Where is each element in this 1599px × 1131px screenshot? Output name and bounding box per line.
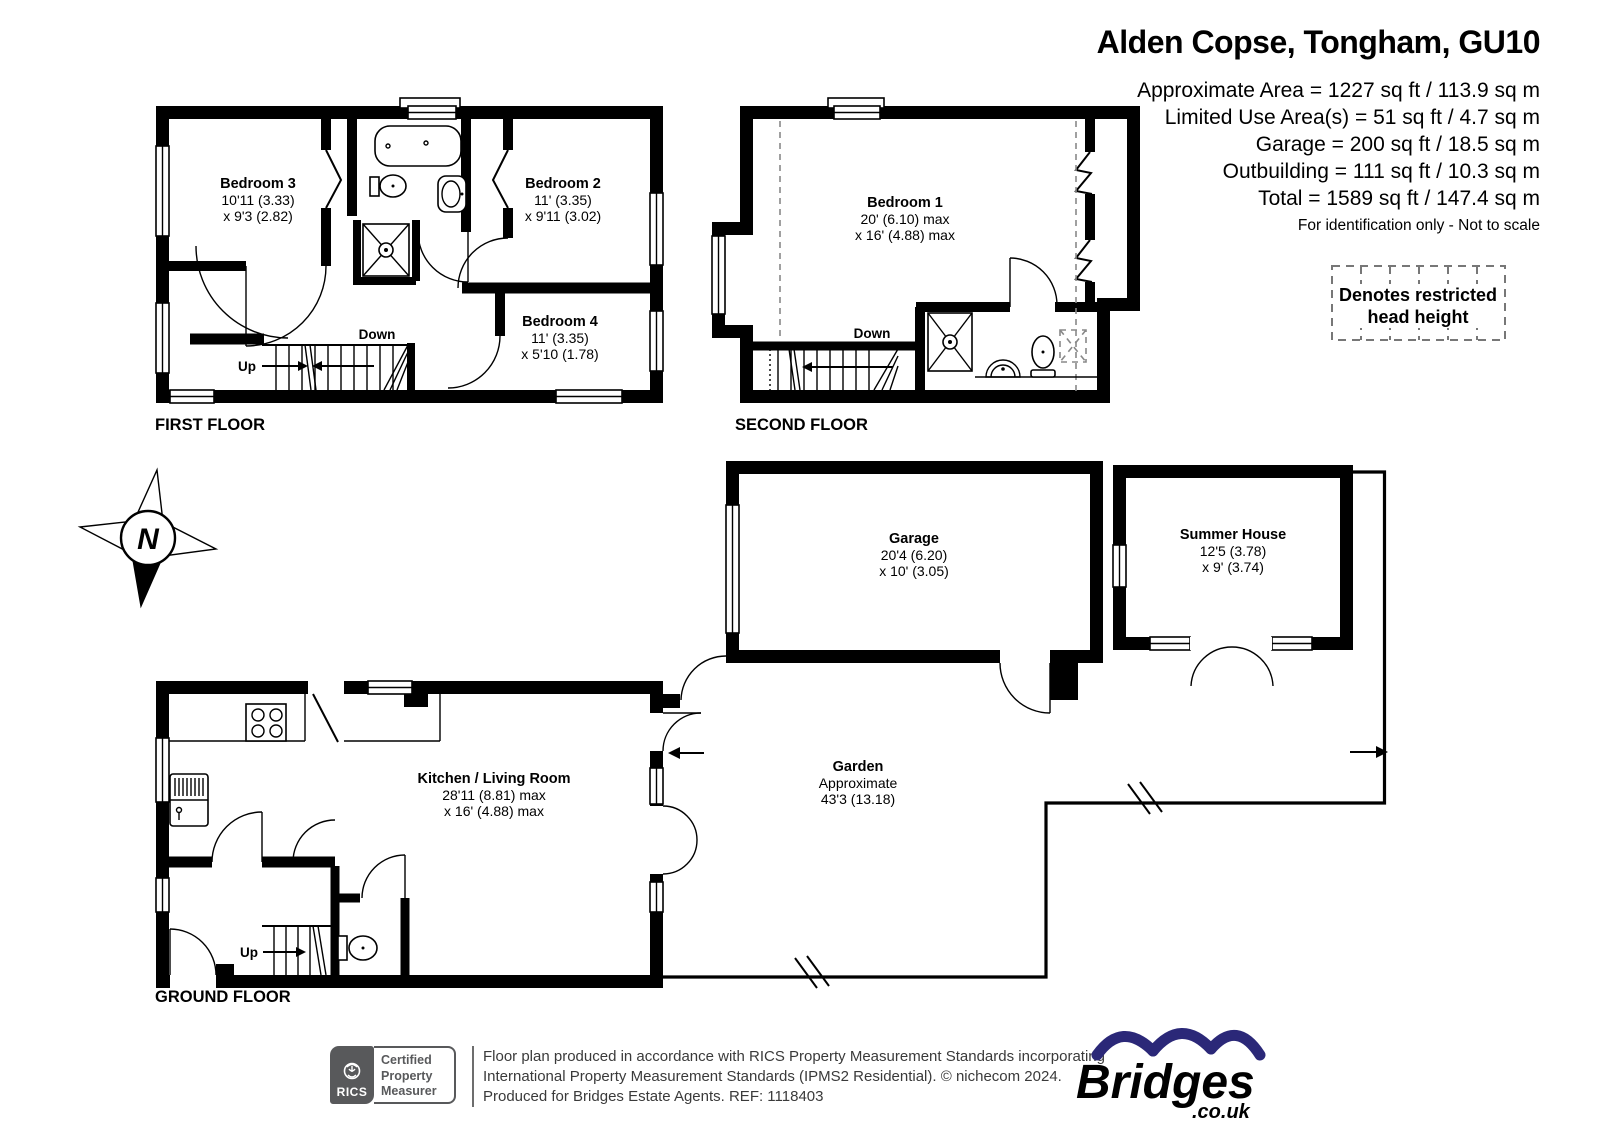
door-arcs <box>212 812 405 898</box>
second-floor-plan: Bedroom 1 20' (6.10) max x 16' (4.88) ma… <box>712 98 1134 434</box>
room-bedroom2-label: Bedroom 2 11' (3.35) x 9'11 (3.02) <box>525 176 601 224</box>
svg-text:28'11 (8.81) max: 28'11 (8.81) max <box>442 787 546 803</box>
svg-text:Summer House: Summer House <box>1180 527 1286 543</box>
svg-text:Denotes restricted: Denotes restricted <box>1339 285 1497 305</box>
cert-line: Measurer <box>381 1084 454 1100</box>
garden-boundary: Garden Approximate 43'3 (13.18) <box>663 472 1388 988</box>
svg-text:Bedroom 2: Bedroom 2 <box>525 176 601 192</box>
garage-area: Garage = 200 sq ft / 18.5 sq m <box>1097 131 1540 158</box>
restricted-height-wall <box>1076 119 1092 309</box>
svg-text:Approximate: Approximate <box>819 775 898 791</box>
toilet-icon <box>370 175 406 197</box>
room-garage-label: Garage 20'4 (6.20) x 10' (3.05) <box>879 531 949 579</box>
total-area: Total = 1589 sq ft / 147.4 sq m <box>1097 185 1540 212</box>
ground-floor-plan: Kitchen / Living Room 28'11 (8.81) max x… <box>155 681 701 1006</box>
stairs-down-label: Down <box>854 326 891 341</box>
bath-icon <box>375 126 461 166</box>
svg-text:12'5 (3.78): 12'5 (3.78) <box>1200 543 1267 559</box>
rics-logo: RICS <box>330 1046 374 1104</box>
stairs-ground-floor <box>262 926 331 975</box>
kitchen-counter <box>169 694 440 741</box>
stairs-down-label: Down <box>359 327 396 342</box>
disclaimer-text: Floor plan produced in accordance with R… <box>483 1046 1105 1107</box>
sink-icon <box>986 360 1020 377</box>
first-floor-plan: Bedroom 3 10'11 (3.33) x 9'3 (2.82) Bedr… <box>155 98 663 434</box>
footer: RICS Certified Property Measurer Floor p… <box>330 1046 1105 1107</box>
garage-plan: Garage 20'4 (6.20) x 10' (3.05) <box>726 468 1097 714</box>
stairs-second-floor <box>770 349 898 390</box>
toilet-icon <box>1031 336 1055 377</box>
svg-text:10'11 (3.33): 10'11 (3.33) <box>221 192 294 208</box>
room-bedroom4-label: Bedroom 4 11' (3.35) x 5'10 (1.78) <box>521 314 598 362</box>
window-icon <box>156 681 663 912</box>
rics-brand: RICS <box>337 1085 368 1099</box>
stairs-up-label: Up <box>240 945 258 960</box>
approximate-area: Approximate Area = 1227 sq ft / 113.9 sq… <box>1097 77 1540 104</box>
outbuilding-area: Outbuilding = 111 sq ft / 10.3 sq m <box>1097 158 1540 185</box>
svg-text:Bedroom 4: Bedroom 4 <box>522 314 598 330</box>
garage-door-icon <box>726 505 739 633</box>
shower-icon <box>928 313 972 371</box>
svg-text:20' (6.10) max: 20' (6.10) max <box>860 211 949 227</box>
restricted-cupboard-icon <box>1060 330 1086 362</box>
disclaimer-line: Produced for Bridges Estate Agents. REF:… <box>483 1087 1105 1107</box>
door-arcs <box>1000 650 1078 713</box>
door-arcs <box>1010 258 1057 307</box>
svg-text:x 16' (4.88) max: x 16' (4.88) max <box>855 227 955 243</box>
room-kitchen-label: Kitchen / Living Room 28'11 (8.81) max x… <box>417 771 570 819</box>
cert-line: Certified <box>381 1053 454 1069</box>
hob-icon <box>246 704 286 741</box>
footer-divider <box>472 1046 474 1107</box>
room-summer-house-label: Summer House 12'5 (3.78) x 9' (3.74) <box>1180 527 1286 575</box>
double-door-icon <box>1190 637 1273 686</box>
svg-text:x 9' (3.74): x 9' (3.74) <box>1202 559 1264 575</box>
svg-text:x 16' (4.88) max: x 16' (4.88) max <box>444 803 544 819</box>
window-icon <box>712 98 884 314</box>
stairs-up-label: Up <box>238 359 256 374</box>
room-bedroom1-label: Bedroom 1 20' (6.10) max x 16' (4.88) ma… <box>855 195 955 243</box>
svg-text:Bedroom 3: Bedroom 3 <box>220 176 296 192</box>
svg-text:x 9'3 (2.82): x 9'3 (2.82) <box>223 208 293 224</box>
compass-north-label: N <box>137 523 160 556</box>
disclaimer-line: International Property Measurement Stand… <box>483 1067 1105 1087</box>
identification-note: For identification only - Not to scale <box>1097 217 1540 235</box>
garden-label: Garden Approximate 43'3 (13.18) <box>819 759 898 807</box>
svg-text:x 9'11 (3.02): x 9'11 (3.02) <box>525 208 601 224</box>
disclaimer-line: Floor plan produced in accordance with R… <box>483 1047 1105 1067</box>
cert-line: Property <box>381 1069 454 1085</box>
restricted-height-legend: Denotes restricted head height <box>1332 266 1505 340</box>
sink-icon <box>438 176 466 212</box>
svg-text:11' (3.35): 11' (3.35) <box>531 330 589 346</box>
ground-floor-title: GROUND FLOOR <box>155 988 291 1006</box>
svg-text:Garden: Garden <box>833 759 884 775</box>
first-floor-title: FIRST FLOOR <box>155 416 265 434</box>
svg-text:20'4 (6.20): 20'4 (6.20) <box>881 547 948 563</box>
limited-use-area: Limited Use Area(s) = 51 sq ft / 4.7 sq … <box>1097 104 1540 131</box>
svg-text:x 5'10 (1.78): x 5'10 (1.78) <box>521 346 598 362</box>
shower-icon <box>363 224 409 276</box>
svg-text:43'3 (13.18): 43'3 (13.18) <box>821 791 895 807</box>
toilet-icon <box>338 936 377 960</box>
compass-icon: N <box>80 470 216 606</box>
plan-header: Alden Copse, Tongham, GU10 Approximate A… <box>1097 24 1540 235</box>
second-floor-title: SECOND FLOOR <box>735 416 868 434</box>
svg-text:11' (3.35): 11' (3.35) <box>534 192 592 208</box>
property-title: Alden Copse, Tongham, GU10 <box>1097 24 1540 61</box>
certified-property-measurer-badge: Certified Property Measurer <box>374 1046 456 1104</box>
svg-text:Garage: Garage <box>889 531 939 547</box>
stairs-first-floor <box>262 345 408 390</box>
svg-text:Kitchen / Living Room: Kitchen / Living Room <box>417 771 570 787</box>
rics-lion-icon <box>339 1059 365 1085</box>
bridges-domain: .co.uk <box>1192 1101 1251 1122</box>
svg-text:Bedroom 1: Bedroom 1 <box>867 195 943 211</box>
summer-house-plan: Summer House 12'5 (3.78) x 9' (3.74) <box>1113 472 1347 687</box>
bridges-logo: Bridges .co.uk <box>1072 1010 1267 1127</box>
svg-text:x 10' (3.05): x 10' (3.05) <box>879 563 949 579</box>
kitchen-sink-icon <box>170 774 208 826</box>
svg-text:head height: head height <box>1367 307 1468 327</box>
room-bedroom3-label: Bedroom 3 10'11 (3.33) x 9'3 (2.82) <box>220 176 296 224</box>
